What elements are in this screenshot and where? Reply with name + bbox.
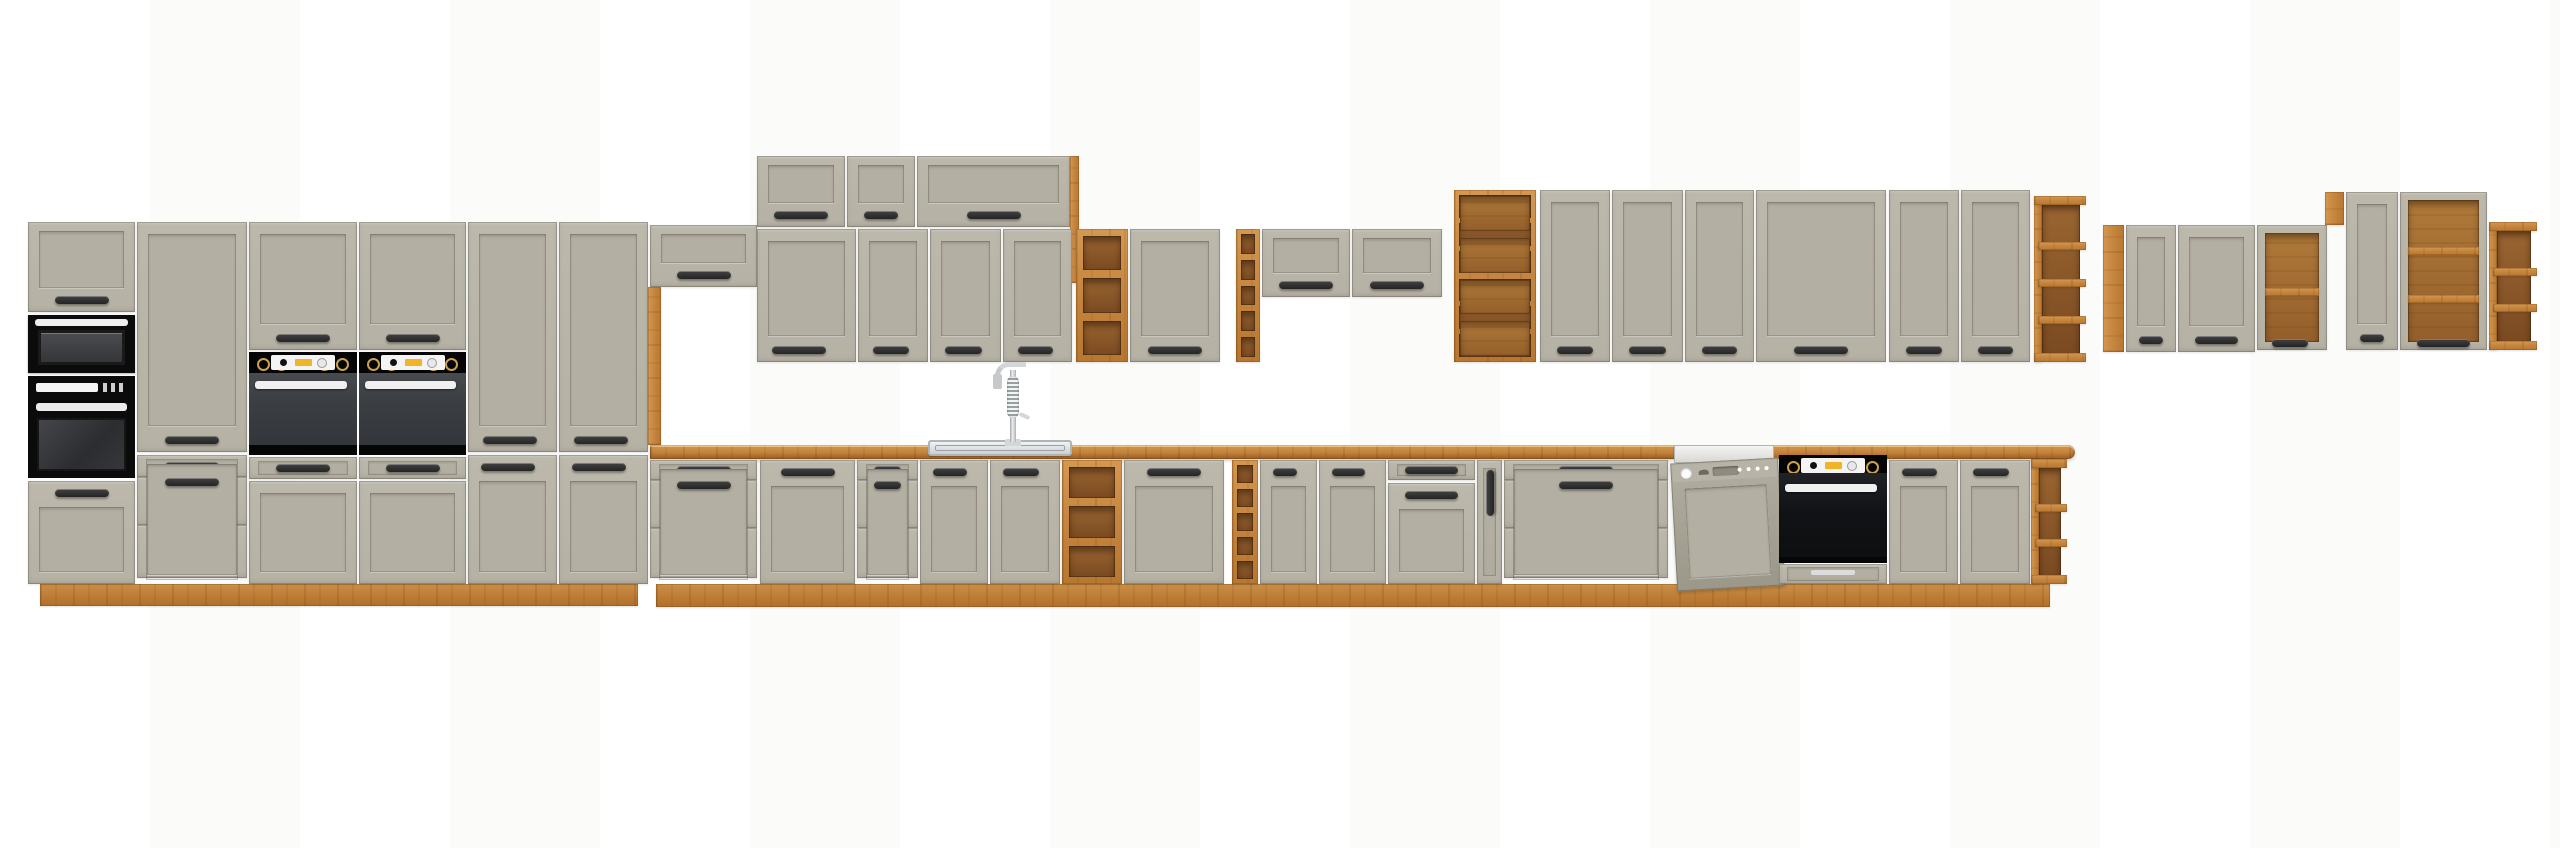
base-end-shelf-shelf-tab-1 — [2035, 504, 2067, 512]
right-group-end-shelf — [2489, 222, 2531, 350]
base-oven — [1779, 455, 1887, 584]
dishwasher — [1670, 445, 1778, 588]
base-drawer-door-panel — [1399, 509, 1464, 572]
wall-door-8-handle — [1702, 346, 1737, 354]
hood-flip-cabinet — [650, 225, 757, 287]
dishwasher-logo-mark — [1699, 469, 1709, 475]
right-group-end-shelf-side-rail — [2489, 222, 2497, 350]
tall3-upper-door-handle — [276, 334, 330, 342]
right-group-door-2-panel — [2189, 237, 2244, 326]
tall3-flip-drawer-drawer-1 — [249, 457, 357, 479]
wall-wine-rack-cell-4 — [1241, 311, 1255, 331]
wall-door-3-panel — [941, 241, 990, 336]
tall1-flip-door-handle — [55, 296, 109, 304]
base-open-shelf-cell-2 — [1069, 506, 1115, 537]
wall-door-10 — [1889, 190, 1959, 362]
base-door-6-panel — [1971, 486, 2019, 572]
base-drawers-2 — [857, 460, 918, 584]
wall-door-9-wide — [1756, 190, 1886, 362]
tall4-lower-front — [359, 481, 466, 584]
right-group-end-shelf-bottom-board — [2489, 341, 2537, 350]
wall-door-2-handle — [873, 346, 909, 354]
raised-flip-cab-2-handle — [864, 211, 898, 219]
tall4-upper-door — [359, 222, 466, 350]
tall5-lower-door — [468, 455, 557, 584]
wall-door-6-panel — [1551, 202, 1599, 336]
base-door-5 — [1889, 460, 1958, 584]
tall4-oven-display — [381, 355, 445, 370]
base-end-shelf — [2031, 459, 2061, 584]
base-wine-rack-cell-1 — [1237, 465, 1253, 483]
base-end-shelf-side-rail — [2031, 459, 2039, 584]
dishwasher-panel-door — [1670, 458, 1785, 592]
base-oven-handle-bar — [1785, 484, 1877, 492]
base-drawers-3-wide-drawer-3 — [1504, 528, 1668, 578]
base-drawer-over-door — [1388, 460, 1475, 480]
tall6-lower-door-handle — [572, 463, 626, 471]
base-wine-rack-cell-5 — [1237, 561, 1253, 579]
tall2-drawers-drawer-3 — [137, 525, 247, 578]
base-door-1 — [760, 460, 855, 584]
tall4-flip-drawer-drawer-1-handle — [386, 464, 440, 472]
wall-door-10-panel — [1900, 202, 1948, 336]
tall1-oven — [28, 376, 135, 478]
base-sink-door-2 — [990, 460, 1060, 584]
tall4-flip-drawer — [359, 457, 466, 479]
right-group-door-3-panel — [2357, 204, 2387, 324]
tall2-drawers-drawer-3-handle — [165, 478, 219, 486]
right-group-end-shelf-top-board — [2489, 222, 2537, 231]
base-pullout-cargo-handle — [1486, 470, 1494, 516]
base-sink-door-1-panel — [931, 486, 977, 572]
right-group-door-3 — [2346, 192, 2398, 350]
right-group-open-cab-2-interior — [2408, 200, 2479, 342]
tall1-microwave — [28, 315, 135, 373]
wall-flip-cab-1-panel — [1273, 238, 1339, 273]
wall-door-7-handle — [1629, 346, 1666, 354]
base-oven-display-timer — [1825, 462, 1842, 469]
right-group-open-cab-1-handle — [2272, 339, 2308, 347]
wall-door-3-handle — [945, 346, 982, 354]
tall5-lower-door-handle — [481, 463, 535, 471]
base-door-1-panel — [771, 486, 844, 572]
wall-flip-cab-1 — [1262, 229, 1350, 297]
tall1-lower-door-handle — [55, 489, 109, 497]
base-drawers-2-drawer-3-handle — [874, 481, 901, 489]
base-drawer-over-door-drawer-1 — [1388, 460, 1475, 480]
base-wine-rack-cell-3 — [1237, 513, 1253, 531]
right-group-end-shelf-shelf-tab-1 — [2493, 268, 2537, 276]
tall-end-side-panel — [648, 287, 661, 445]
tall3-oven-display-dot — [280, 359, 287, 366]
wall-flip-cab-2-panel — [1363, 238, 1431, 273]
base-open-shelf — [1062, 460, 1122, 584]
tall3-lower-front-panel — [260, 493, 346, 572]
tall1-microwave-window — [38, 330, 125, 365]
wall-open-shelf-cell-2 — [1083, 278, 1121, 312]
dishwasher-control-strip — [1672, 460, 1777, 483]
right-group-end-shelf-interior — [2497, 230, 2531, 342]
tall6-lower-door-panel — [570, 481, 637, 572]
right-group-open-cab-1 — [2257, 225, 2327, 350]
tall1-oven-window — [37, 418, 126, 471]
wall-door-11-panel — [1972, 202, 2019, 336]
tall4-oven-display-ring — [427, 358, 437, 368]
dishwasher-indicator-3 — [1746, 467, 1750, 471]
tall4-oven-knob-l1 — [367, 358, 380, 371]
kitchen-cabinet-set-render — [0, 0, 2560, 848]
raised-flip-cab-3-panel — [928, 165, 1059, 203]
raised-flip-cab-3 — [917, 156, 1070, 227]
base-oven-display — [1801, 458, 1865, 473]
tall1-oven-handle-bar — [36, 403, 127, 411]
wall-combo-shelf-shelf-column-cell-3 — [1460, 280, 1530, 315]
wall-wine-rack-cell-2 — [1241, 260, 1255, 280]
wall-door-2 — [858, 229, 928, 362]
dishwasher-latch — [1712, 466, 1738, 476]
faucet — [993, 362, 1037, 446]
tall2-pantry-door — [137, 222, 247, 452]
wall-door-8-panel — [1696, 202, 1743, 336]
right-group-filler-block — [2325, 192, 2344, 225]
right-group-side-panel — [2103, 225, 2124, 352]
base-door-2-wide — [1124, 460, 1224, 584]
wall-door-1-panel — [768, 241, 845, 336]
base-door-4 — [1319, 460, 1386, 584]
right-group-open-cab-1-shelf-1 — [2265, 288, 2319, 296]
raised-flip-cab-2-panel — [858, 165, 904, 203]
tall3-oven-display-ring — [317, 358, 327, 368]
wall-flip-cab-2-handle — [1370, 281, 1424, 289]
hood-flip-cabinet-panel — [661, 234, 746, 263]
base-oven-bottom-strip — [1779, 557, 1887, 563]
tall3-oven-display-timer — [295, 359, 312, 366]
tall6-larder-door — [559, 222, 648, 452]
tall1-microwave-handle-bar — [35, 319, 128, 326]
tall4-oven-display-dot — [390, 359, 397, 366]
tall4-oven-control-panel — [359, 352, 466, 373]
tall4-flip-drawer-drawer-1 — [359, 457, 466, 479]
tall2-pantry-door-handle — [165, 436, 219, 444]
tall3-flip-drawer-drawer-1-handle — [276, 464, 330, 472]
wall-door-3 — [930, 229, 1001, 362]
wall-combo-shelf-shelf-column-cell-1 — [1460, 196, 1530, 231]
wall-combo-shelf — [1454, 190, 1536, 362]
base-drawers-1-drawer-3-handle — [677, 481, 731, 489]
right-group-door-1 — [2126, 225, 2176, 352]
hood-flip-cabinet-handle — [677, 271, 731, 279]
base-end-shelf-top-board — [2031, 459, 2067, 468]
tall4-upper-door-panel — [370, 234, 455, 324]
tall6-larder-door-panel — [570, 234, 637, 426]
wall-door-11 — [1961, 190, 2030, 362]
wall-door-5-panel — [1141, 241, 1209, 336]
base-door-5-panel — [1900, 486, 1947, 572]
wall-door-9-wide-panel — [1767, 202, 1875, 336]
base-oven-display-dot — [1810, 462, 1817, 469]
base-end-shelf-shelf-tab-2 — [2035, 539, 2067, 547]
base-sink-door-1 — [920, 460, 988, 584]
base-drawers-3-wide — [1504, 460, 1668, 584]
raised-flip-cab-2 — [847, 156, 915, 227]
tall1-flip-door-panel — [39, 231, 124, 288]
tall2-pantry-door-panel — [148, 234, 236, 426]
base-end-shelf-bottom-board — [2031, 575, 2067, 584]
wall-door-8 — [1685, 190, 1754, 362]
right-group-open-cab-2-shelf-1 — [2408, 247, 2479, 255]
wall-wine-rack — [1236, 229, 1260, 362]
tall6-larder-door-handle — [574, 436, 628, 444]
wall-flip-cab-1-handle — [1279, 281, 1333, 289]
tall3-flip-drawer — [249, 457, 357, 479]
wall-end-open-shelf — [2034, 196, 2080, 362]
wall-combo-shelf-shelf-column-cell-4 — [1460, 321, 1530, 356]
wall-open-shelf-cell-1 — [1083, 236, 1121, 270]
base-door-6-handle — [1973, 468, 2009, 476]
wall-door-7 — [1612, 190, 1683, 362]
base-pullout-cargo — [1477, 460, 1502, 584]
base-wine-rack-cell-4 — [1237, 537, 1253, 555]
base-sink-door-1-handle — [933, 468, 967, 476]
dishwasher-panel-recess — [1685, 484, 1772, 578]
dishwasher-indicator-2 — [1755, 467, 1759, 471]
raised-flip-cab-1-panel — [768, 165, 834, 203]
base-oven-lower-front-slot — [1811, 570, 1855, 575]
wall-end-open-shelf-shelf-tab-3 — [2038, 316, 2086, 324]
base-drawers-1-drawer-3 — [650, 528, 757, 578]
base-oven-lower-front — [1779, 564, 1887, 584]
tall3-upper-door-panel — [260, 234, 346, 324]
dishwasher-indicator-1 — [1764, 466, 1768, 470]
wall-door-7-panel — [1623, 202, 1672, 336]
tall3-oven-handle-bar — [255, 381, 347, 389]
base-sink-door-2-handle — [1003, 468, 1039, 476]
right-group-door-2-handle — [2195, 336, 2238, 344]
base-wine-rack — [1232, 460, 1258, 584]
base-drawers-1 — [650, 460, 757, 584]
raised-flip-cab-1 — [757, 156, 845, 227]
wall-door-5-handle — [1148, 346, 1202, 354]
wall-wine-rack-cell-3 — [1241, 286, 1255, 306]
tall4-upper-door-handle — [386, 334, 440, 342]
tall3-oven — [249, 352, 357, 455]
tall1-lower-door-panel — [39, 507, 124, 572]
base-door-3 — [1260, 460, 1317, 584]
base-door-5-handle — [1902, 468, 1937, 476]
right-group-door-1-handle — [2139, 336, 2163, 344]
base-open-shelf-cell-3 — [1069, 546, 1115, 577]
base-run-plinth — [656, 584, 2050, 607]
tall3-lower-front — [249, 481, 357, 584]
tall4-oven — [359, 352, 466, 455]
wall-end-open-shelf-shelf-tab-2 — [2038, 279, 2086, 287]
tall3-oven-knob-r2 — [336, 358, 349, 371]
wall-door-1 — [757, 229, 856, 362]
tall1-flip-door — [28, 222, 135, 312]
tall3-upper-door — [249, 222, 357, 350]
base-door-3-handle — [1273, 468, 1297, 476]
tall3-oven-knob-l1 — [257, 358, 270, 371]
wall-door-2-panel — [869, 241, 917, 336]
tall3-oven-bottom-strip — [249, 445, 357, 455]
raised-flip-cab-3-handle — [967, 211, 1021, 219]
base-door-6 — [1960, 460, 2030, 584]
base-drawer-door-handle — [1405, 491, 1458, 499]
wall-wine-rack-cell-5 — [1241, 337, 1255, 357]
right-group-open-cab-2-shelf-2 — [2408, 295, 2479, 303]
right-group-door-3-handle — [2360, 334, 2384, 342]
wall-door-6 — [1540, 190, 1610, 362]
wall-end-open-shelf-bottom-board — [2034, 353, 2086, 362]
wall-door-5 — [1130, 229, 1220, 362]
tall6-lower-door — [559, 455, 648, 584]
base-wine-rack-cell-2 — [1237, 489, 1253, 507]
tall2-drawers — [137, 455, 247, 584]
tall4-oven-knob-r2 — [445, 358, 458, 371]
tall3-oven-display — [271, 355, 335, 370]
tall1-oven-display — [36, 383, 98, 392]
wall-open-shelf — [1076, 229, 1128, 362]
base-door-4-handle — [1332, 468, 1365, 476]
wall-open-shelf-cell-3 — [1083, 321, 1121, 355]
tall5-lower-door-panel — [479, 481, 546, 572]
base-drawer-door — [1388, 483, 1475, 584]
wall-door-6-handle — [1557, 346, 1593, 354]
tall5-larder-door-handle — [483, 436, 537, 444]
right-group-end-shelf-shelf-tab-2 — [2493, 304, 2537, 312]
tall3-oven-control-panel — [249, 352, 357, 373]
wall-door-4-panel — [1014, 241, 1061, 336]
tall4-oven-handle-bar — [365, 381, 456, 389]
wall-door-9-wide-handle — [1794, 346, 1848, 354]
base-drawers-3-wide-drawer-3-handle — [1559, 481, 1613, 489]
faucet-sprayer-head — [993, 374, 1002, 389]
tall5-larder-door — [468, 222, 557, 452]
base-end-shelf-interior — [2039, 467, 2061, 576]
wall-wine-rack-cell-1 — [1241, 234, 1255, 254]
tall-unit-plinth — [40, 584, 638, 606]
tall4-oven-bottom-strip — [359, 445, 466, 455]
base-door-3-panel — [1271, 486, 1306, 572]
raised-flip-cab-1-handle — [774, 211, 828, 219]
faucet-lever — [1019, 412, 1031, 420]
wall-door-1-handle — [772, 346, 826, 354]
tall5-larder-door-panel — [479, 234, 546, 426]
dishwasher-power-knob — [1680, 467, 1692, 479]
wall-door-11-handle — [1978, 346, 2013, 354]
tall1-lower-door — [28, 481, 135, 584]
tall1-oven-display-ticks — [103, 383, 125, 392]
wall-flip-cab-2 — [1352, 229, 1442, 297]
tall4-oven-display-timer — [405, 359, 422, 366]
wall-door-4 — [1003, 229, 1072, 362]
wall-end-open-shelf-top-board — [2034, 196, 2086, 205]
base-door-2-wide-panel — [1135, 486, 1213, 572]
base-door-2-wide-handle — [1147, 468, 1201, 476]
right-group-door-2 — [2178, 225, 2255, 352]
right-group-door-1-panel — [2137, 237, 2165, 326]
base-oven-display-ring — [1847, 461, 1857, 471]
tall4-lower-front-panel — [370, 493, 455, 572]
base-sink-door-2-panel — [1001, 486, 1049, 572]
base-door-1-handle — [781, 468, 835, 476]
wall-door-10-handle — [1906, 346, 1942, 354]
base-door-4-panel — [1330, 486, 1375, 572]
wall-door-4-handle — [1018, 346, 1053, 354]
wall-end-open-shelf-shelf-tab-1 — [2038, 242, 2086, 250]
right-group-open-cab-2-handle — [2417, 339, 2470, 347]
wall-combo-shelf-shelf-column-cell-2 — [1460, 238, 1530, 273]
base-open-shelf-cell-1 — [1069, 467, 1115, 498]
dishwasher-indicator-4 — [1737, 468, 1741, 472]
base-drawer-over-door-drawer-1-handle — [1405, 466, 1458, 474]
right-group-open-cab-2 — [2400, 192, 2487, 350]
